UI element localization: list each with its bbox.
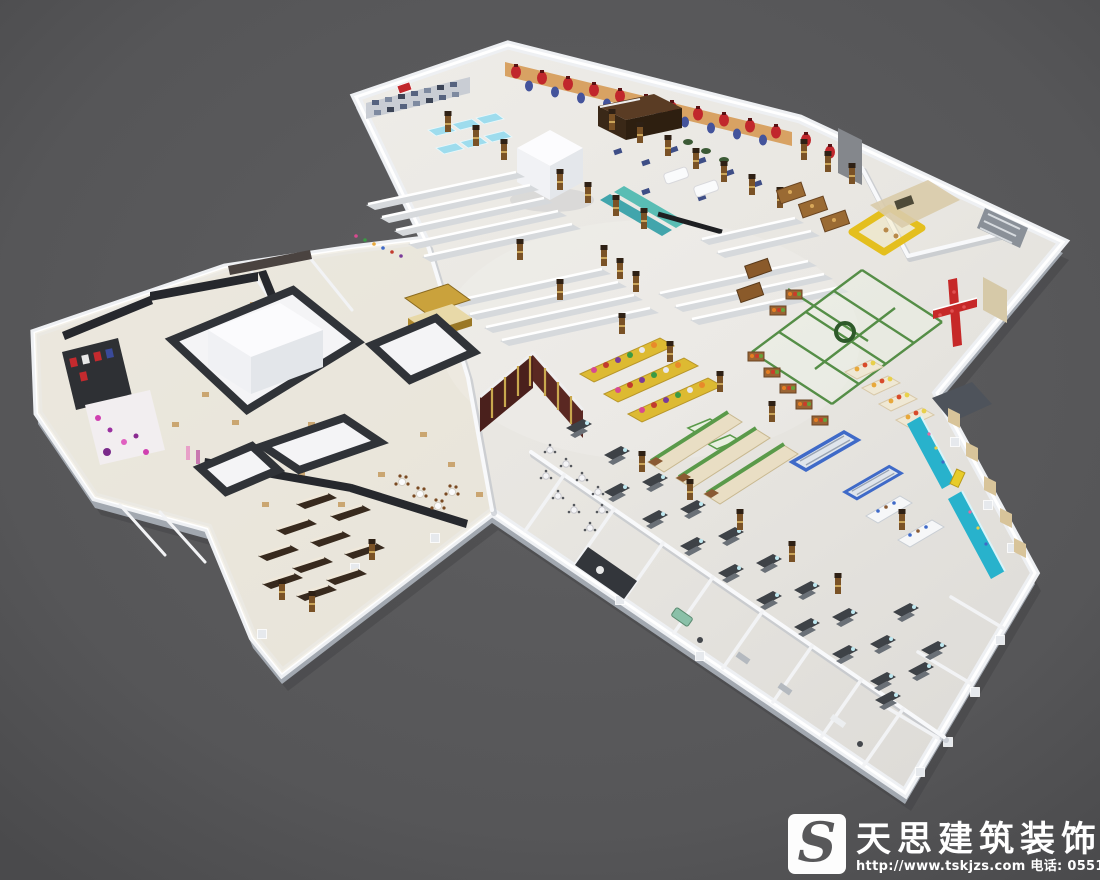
logo-letter: S [798, 810, 837, 874]
watermark: S 天思建筑装饰 http://www.tskjzs.com 电话: 0551-… [788, 810, 1100, 874]
render-canvas: S 天思建筑装饰 http://www.tskjzs.com 电话: 0551-… [0, 0, 1100, 880]
watermark-contact-text: http://www.tskjzs.com 电话: 0551-65568226 [856, 858, 1100, 874]
shop-fixture [857, 741, 863, 747]
shop-fixture [697, 637, 703, 643]
shop-fixture [596, 566, 604, 574]
dress-form [196, 450, 200, 464]
dress-form [186, 446, 190, 460]
floorplan-3d-render: S 天思建筑装饰 http://www.tskjzs.com 电话: 0551-… [0, 0, 1100, 880]
watermark-brand-text: 天思建筑装饰 [856, 820, 1100, 860]
